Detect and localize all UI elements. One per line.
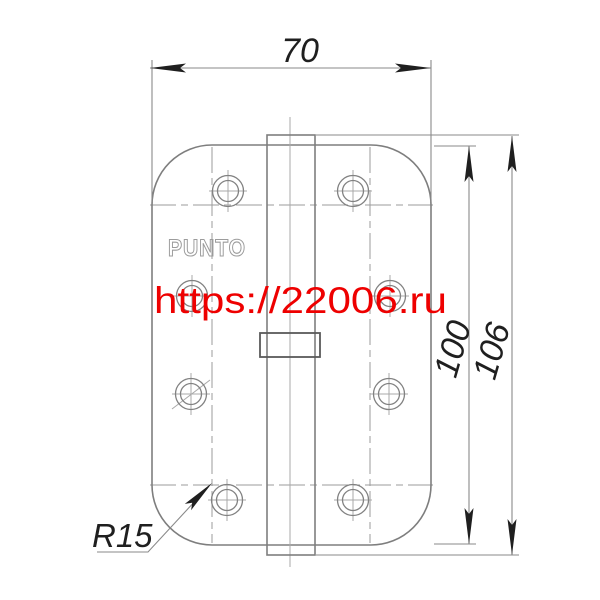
watermark-text: https://22006.ru — [154, 280, 447, 321]
screw-hole — [172, 373, 210, 415]
screw-hole — [370, 373, 408, 415]
hinge-drawing-page: 70 100 106 R15 PUNTO http — [0, 0, 600, 600]
brand-text: PUNTO — [168, 235, 246, 262]
hinge-technical-drawing: 70 100 106 R15 PUNTO http — [0, 0, 600, 600]
hinge-pin — [267, 135, 315, 555]
screw-hole — [334, 170, 372, 212]
dim-width-label: 70 — [281, 32, 319, 70]
leader-arrowhead — [185, 483, 212, 510]
corner-radius-label: R15 — [92, 517, 153, 554]
dimension-leaf-height: 100 — [427, 146, 479, 544]
screw-hole — [209, 170, 247, 212]
